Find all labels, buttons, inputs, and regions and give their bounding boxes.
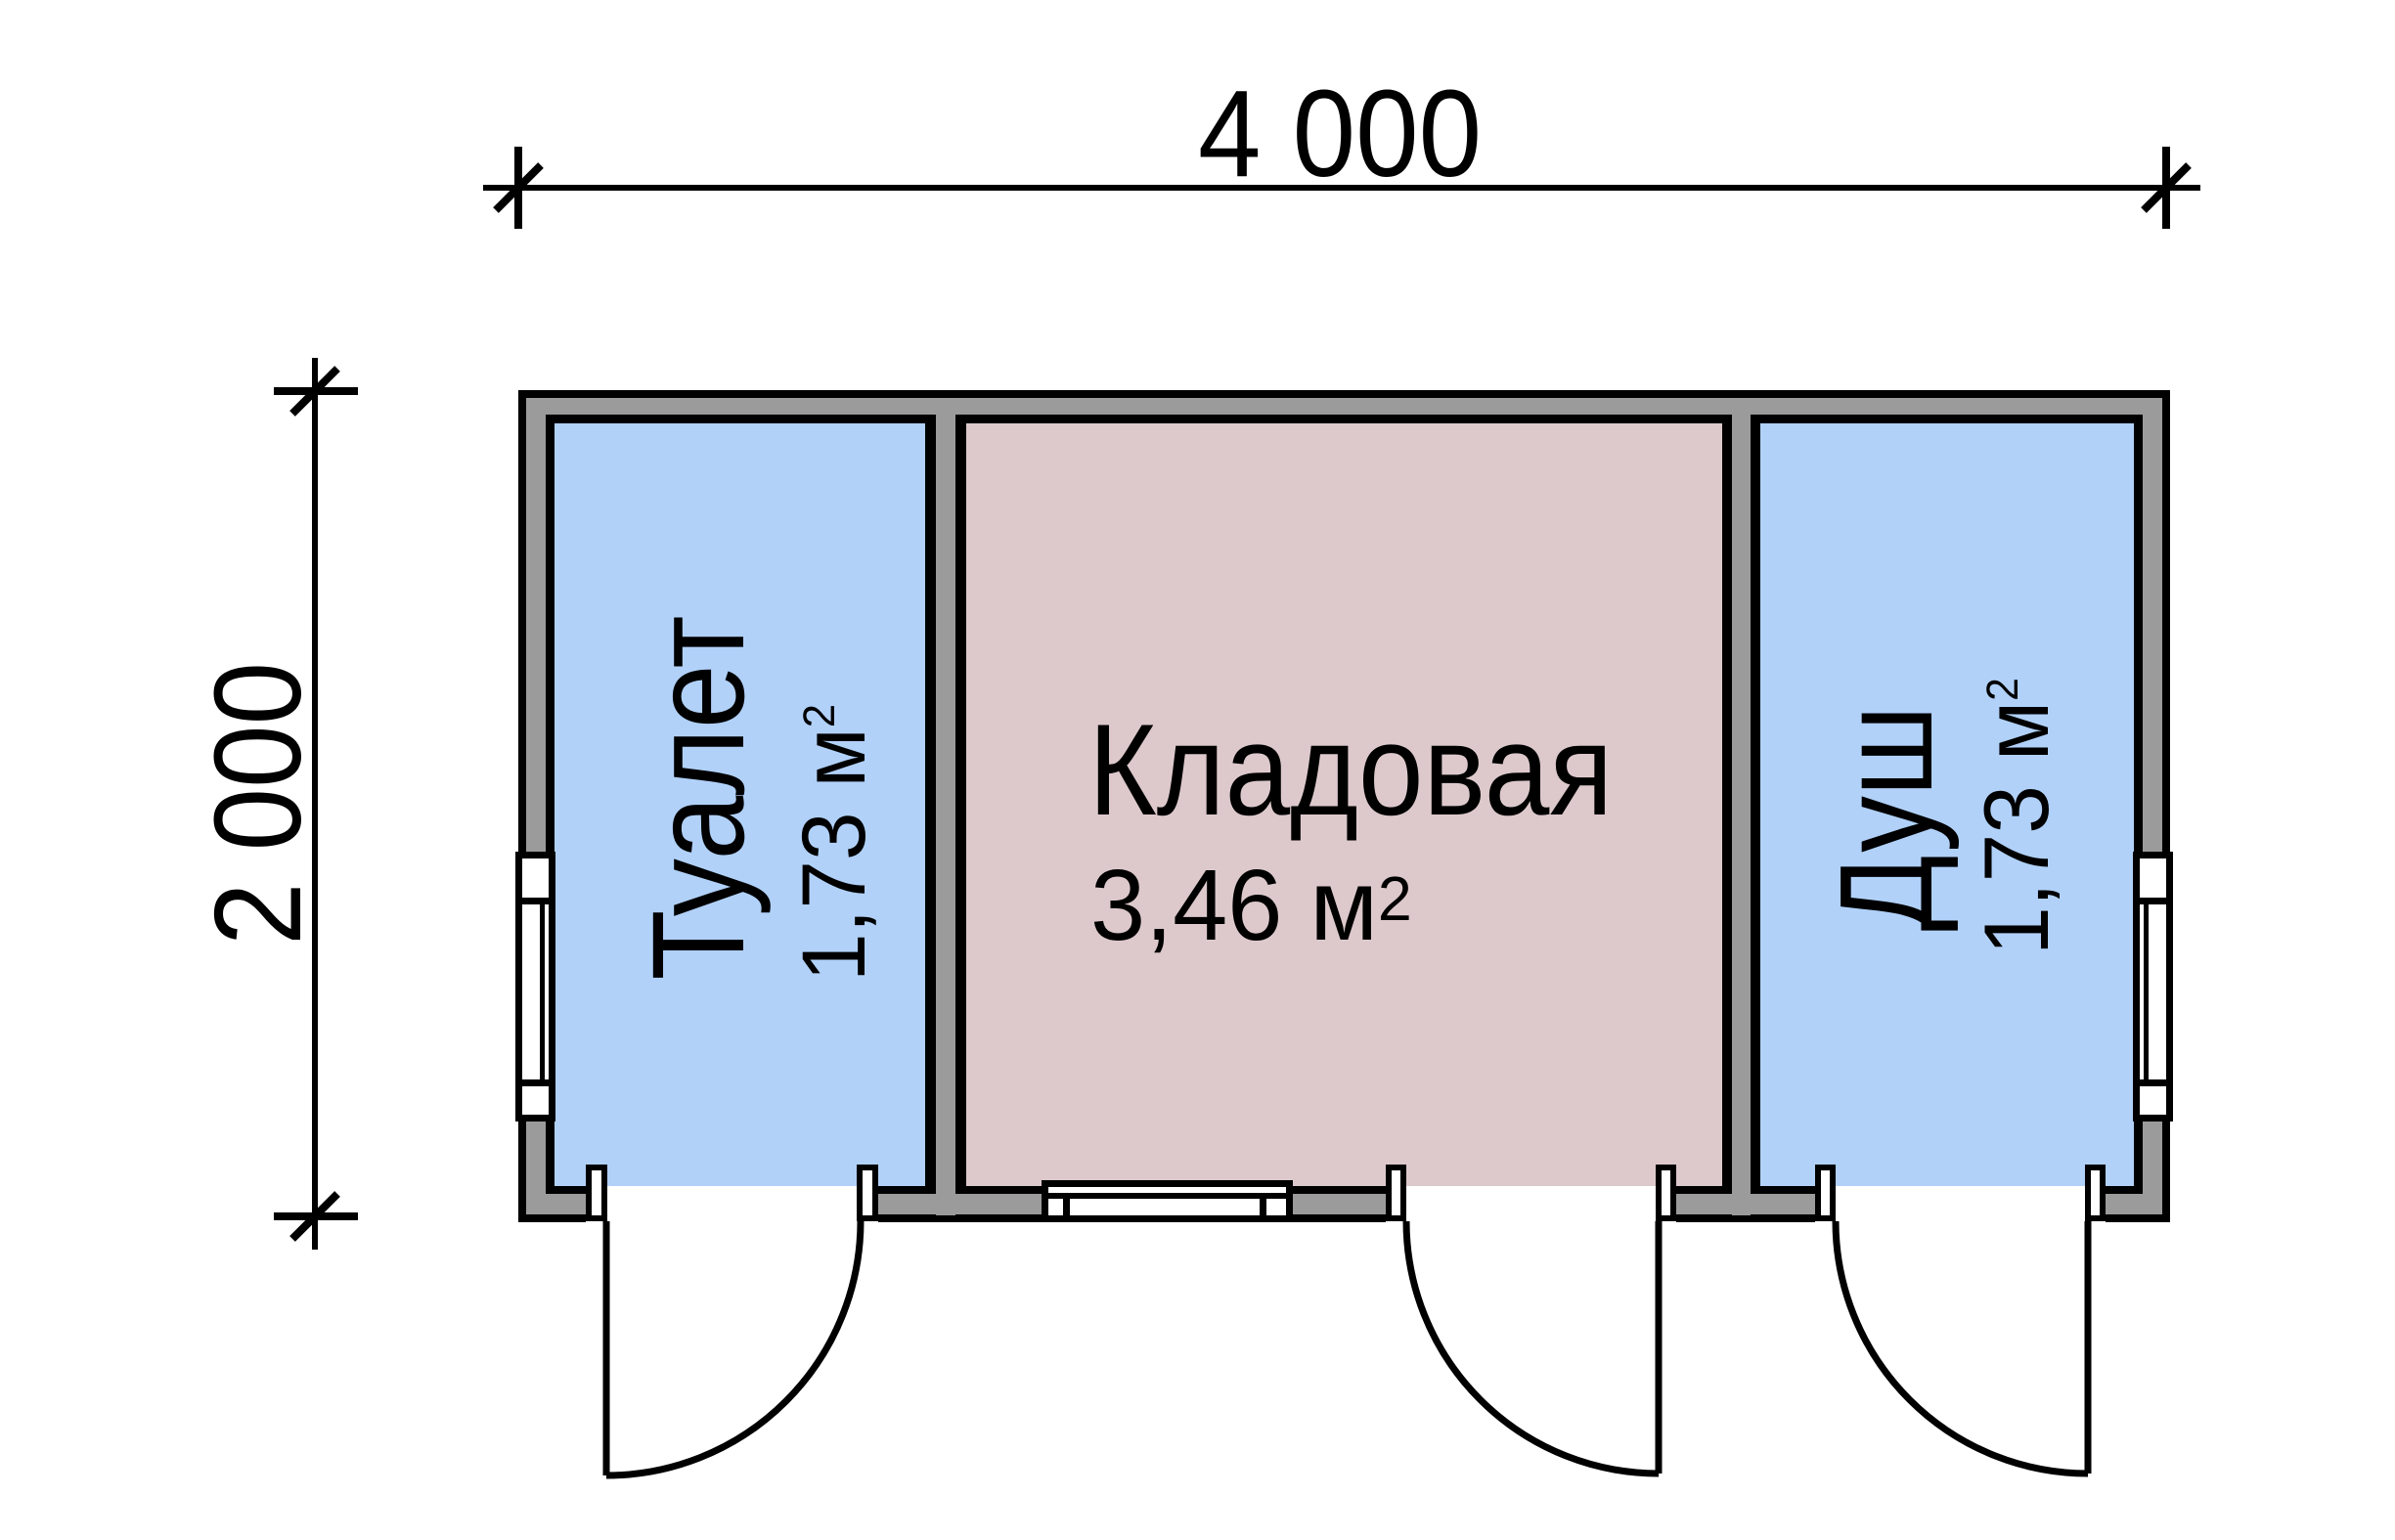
svg-text:2 000: 2 000 [189,662,328,946]
svg-text:Туалет: Туалет [625,615,772,980]
svg-text:3,46 м2: 3,46 м2 [1090,849,1412,961]
svg-text:1,73 м2: 1,73 м2 [784,704,885,982]
svg-text:1,73 м2: 1,73 м2 [1966,678,2068,955]
svg-text:4 000: 4 000 [1198,65,1482,203]
svg-text:Кладовая: Кладовая [1088,696,1613,842]
svg-text:Душ: Душ [1811,706,1960,932]
